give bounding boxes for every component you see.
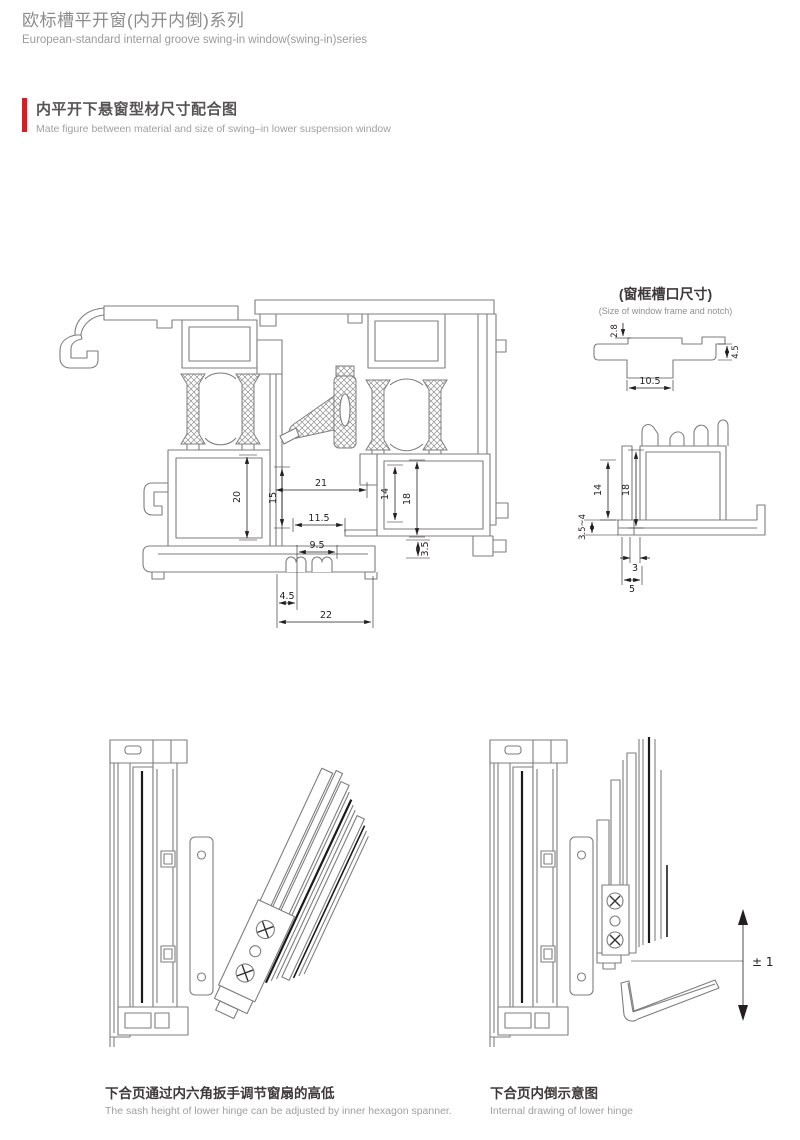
gasket xyxy=(280,366,356,448)
dim-18b-label: 18 xyxy=(621,484,632,496)
dim-18-label: 18 xyxy=(402,493,413,505)
dim-2_8-label: 2.8 xyxy=(610,324,620,338)
window-frame-section xyxy=(110,740,188,1047)
dim-21-label: 21 xyxy=(315,478,327,489)
dim-14b-label: 14 xyxy=(593,484,604,496)
notch-profile xyxy=(594,337,725,378)
notch-title-zh: (窗框槽口尺寸) xyxy=(568,284,763,304)
section-heading: 内平开下悬窗型材尺寸配合图 Mate figure between materi… xyxy=(22,98,391,135)
dim-5-label: 5 xyxy=(629,584,635,595)
dim-15-label: 15 xyxy=(268,492,279,504)
thermal-break-bar xyxy=(423,380,447,450)
vertical-sash xyxy=(597,737,667,969)
dim-22-label: 22 xyxy=(320,610,332,621)
caption-right: 下合页内倒示意图 Internal drawing of lower hinge xyxy=(490,1082,633,1117)
sash-hinge-block xyxy=(219,900,295,1002)
caption-right-en: Internal drawing of lower hinge xyxy=(490,1105,633,1117)
thermal-break-bar xyxy=(366,380,390,450)
heading-text: 内平开下悬窗型材尺寸配合图 Mate figure between materi… xyxy=(36,98,391,135)
adjustment-label: ± 1 xyxy=(752,955,774,969)
section-title-zh: 内平开下悬窗型材尺寸配合图 xyxy=(36,98,391,119)
window-frame-section xyxy=(490,740,568,1047)
sash-detail-profile xyxy=(618,420,765,535)
heading-accent-bar xyxy=(22,98,27,132)
hinge-plate xyxy=(190,837,213,995)
dim-4_5-label: 4.5 xyxy=(279,591,294,602)
dim-11_5-label: 11.5 xyxy=(308,513,329,524)
main-profile-diagram: 20 21 15 14 18 11.5 9.5 3.5 4.5 xyxy=(50,278,510,633)
dim-3_5-label: 3.5 xyxy=(420,541,431,556)
hinge-plate xyxy=(570,837,593,995)
section-title-en: Mate figure between material and size of… xyxy=(36,123,391,135)
thermal-break-bar xyxy=(236,374,260,444)
caption-right-zh: 下合页内倒示意图 xyxy=(490,1082,633,1102)
caption-left-en: The sash height of lower hinge can be ad… xyxy=(105,1105,452,1117)
dim-9_5-label: 9.5 xyxy=(309,540,324,551)
dim-3-label: 3 xyxy=(632,563,638,574)
dim-14-label: 14 xyxy=(380,488,391,500)
tilted-sash xyxy=(208,764,385,1038)
page-header: 欧标槽平开窗(内开内倒)系列 European-standard interna… xyxy=(22,6,367,46)
notch-title-en: (Size of window frame and notch) xyxy=(568,306,763,316)
sash-hinge-block xyxy=(602,885,629,955)
page-title-zh: 欧标槽平开窗(内开内倒)系列 xyxy=(22,6,367,31)
hinge-tilt-diagram: ± 1 xyxy=(465,725,785,1070)
caption-left: 下合页通过内六角扳手调节窗扇的高低 The sash height of low… xyxy=(105,1082,452,1117)
hinge-adjust-diagram xyxy=(95,725,385,1070)
catalog-page: 欧标槽平开窗(内开内倒)系列 European-standard interna… xyxy=(0,0,800,1140)
frame-profile xyxy=(60,306,377,579)
thermal-break-bar xyxy=(181,374,205,444)
notch-detail-heading: (窗框槽口尺寸) (Size of window frame and notch… xyxy=(568,284,763,316)
dim-4_5b-label: 4.5 xyxy=(731,345,741,359)
dim-3_5-4-label: 3.5~4 xyxy=(578,514,588,540)
page-title-en: European-standard internal groove swing-… xyxy=(22,34,367,46)
frame-notch-diagram: 2.8 4.5 10.5 xyxy=(590,322,745,397)
dim-20-label: 20 xyxy=(232,491,243,503)
caption-left-zh: 下合页通过内六角扳手调节窗扇的高低 xyxy=(105,1082,452,1102)
dim-10_5-label: 10.5 xyxy=(639,376,660,387)
sash-profile-diagram: 14 18 3.5~4 3 5 xyxy=(578,408,773,596)
hex-key-icon xyxy=(621,980,719,1021)
